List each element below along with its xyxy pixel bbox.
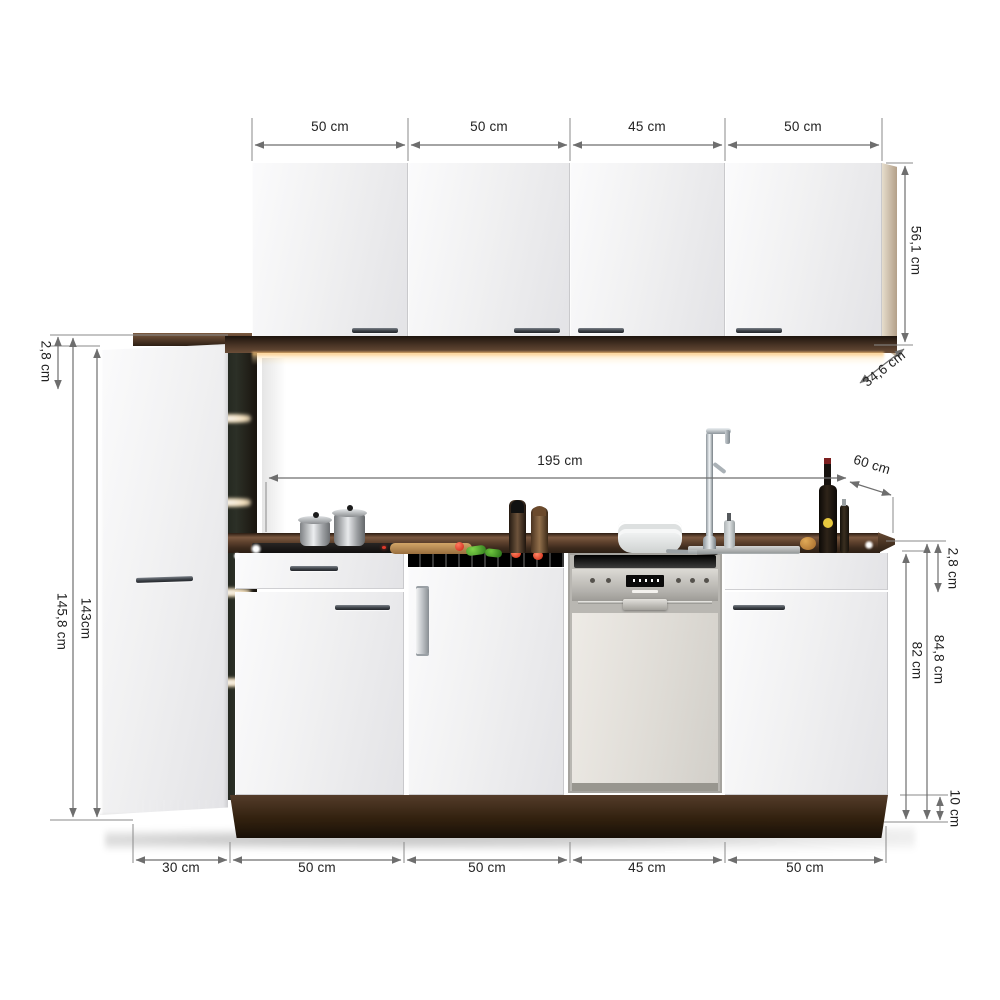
- dim-label-tall-height: 145,8 cm: [55, 587, 70, 657]
- dim-label-bottom-3: 50 cm: [452, 860, 522, 875]
- dim-label-top-1: 50 cm: [295, 119, 365, 134]
- dim-label-worktop-thickness: 2,8 cm: [946, 534, 961, 604]
- dim-label-top-4: 50 cm: [768, 119, 838, 134]
- dim-label-plinth-height: 10 cm: [948, 774, 963, 844]
- dim-label-bottom-2: 50 cm: [282, 860, 352, 875]
- kitchen-dimension-diagram: 50 cm 50 cm 45 cm 50 cm 56,1 cm 34,6 cm …: [0, 0, 1000, 1000]
- dim-label-counter-total-height: 84,8 cm: [932, 625, 947, 695]
- dim-label-wall-height: 56,1 cm: [909, 216, 924, 286]
- dim-label-tall-top-offset: 2,8 cm: [39, 327, 54, 397]
- dim-label-tall-door-height: 143cm: [79, 584, 94, 654]
- dim-label-top-2: 50 cm: [454, 119, 524, 134]
- dim-label-bottom-5: 50 cm: [770, 860, 840, 875]
- dim-label-bottom-1: 30 cm: [146, 860, 216, 875]
- dim-label-base-height: 82 cm: [910, 626, 925, 696]
- dimension-lines: [0, 0, 1000, 1000]
- dim-label-bottom-4: 45 cm: [612, 860, 682, 875]
- dim-label-worktop-length: 195 cm: [525, 453, 595, 468]
- dim-label-top-3: 45 cm: [612, 119, 682, 134]
